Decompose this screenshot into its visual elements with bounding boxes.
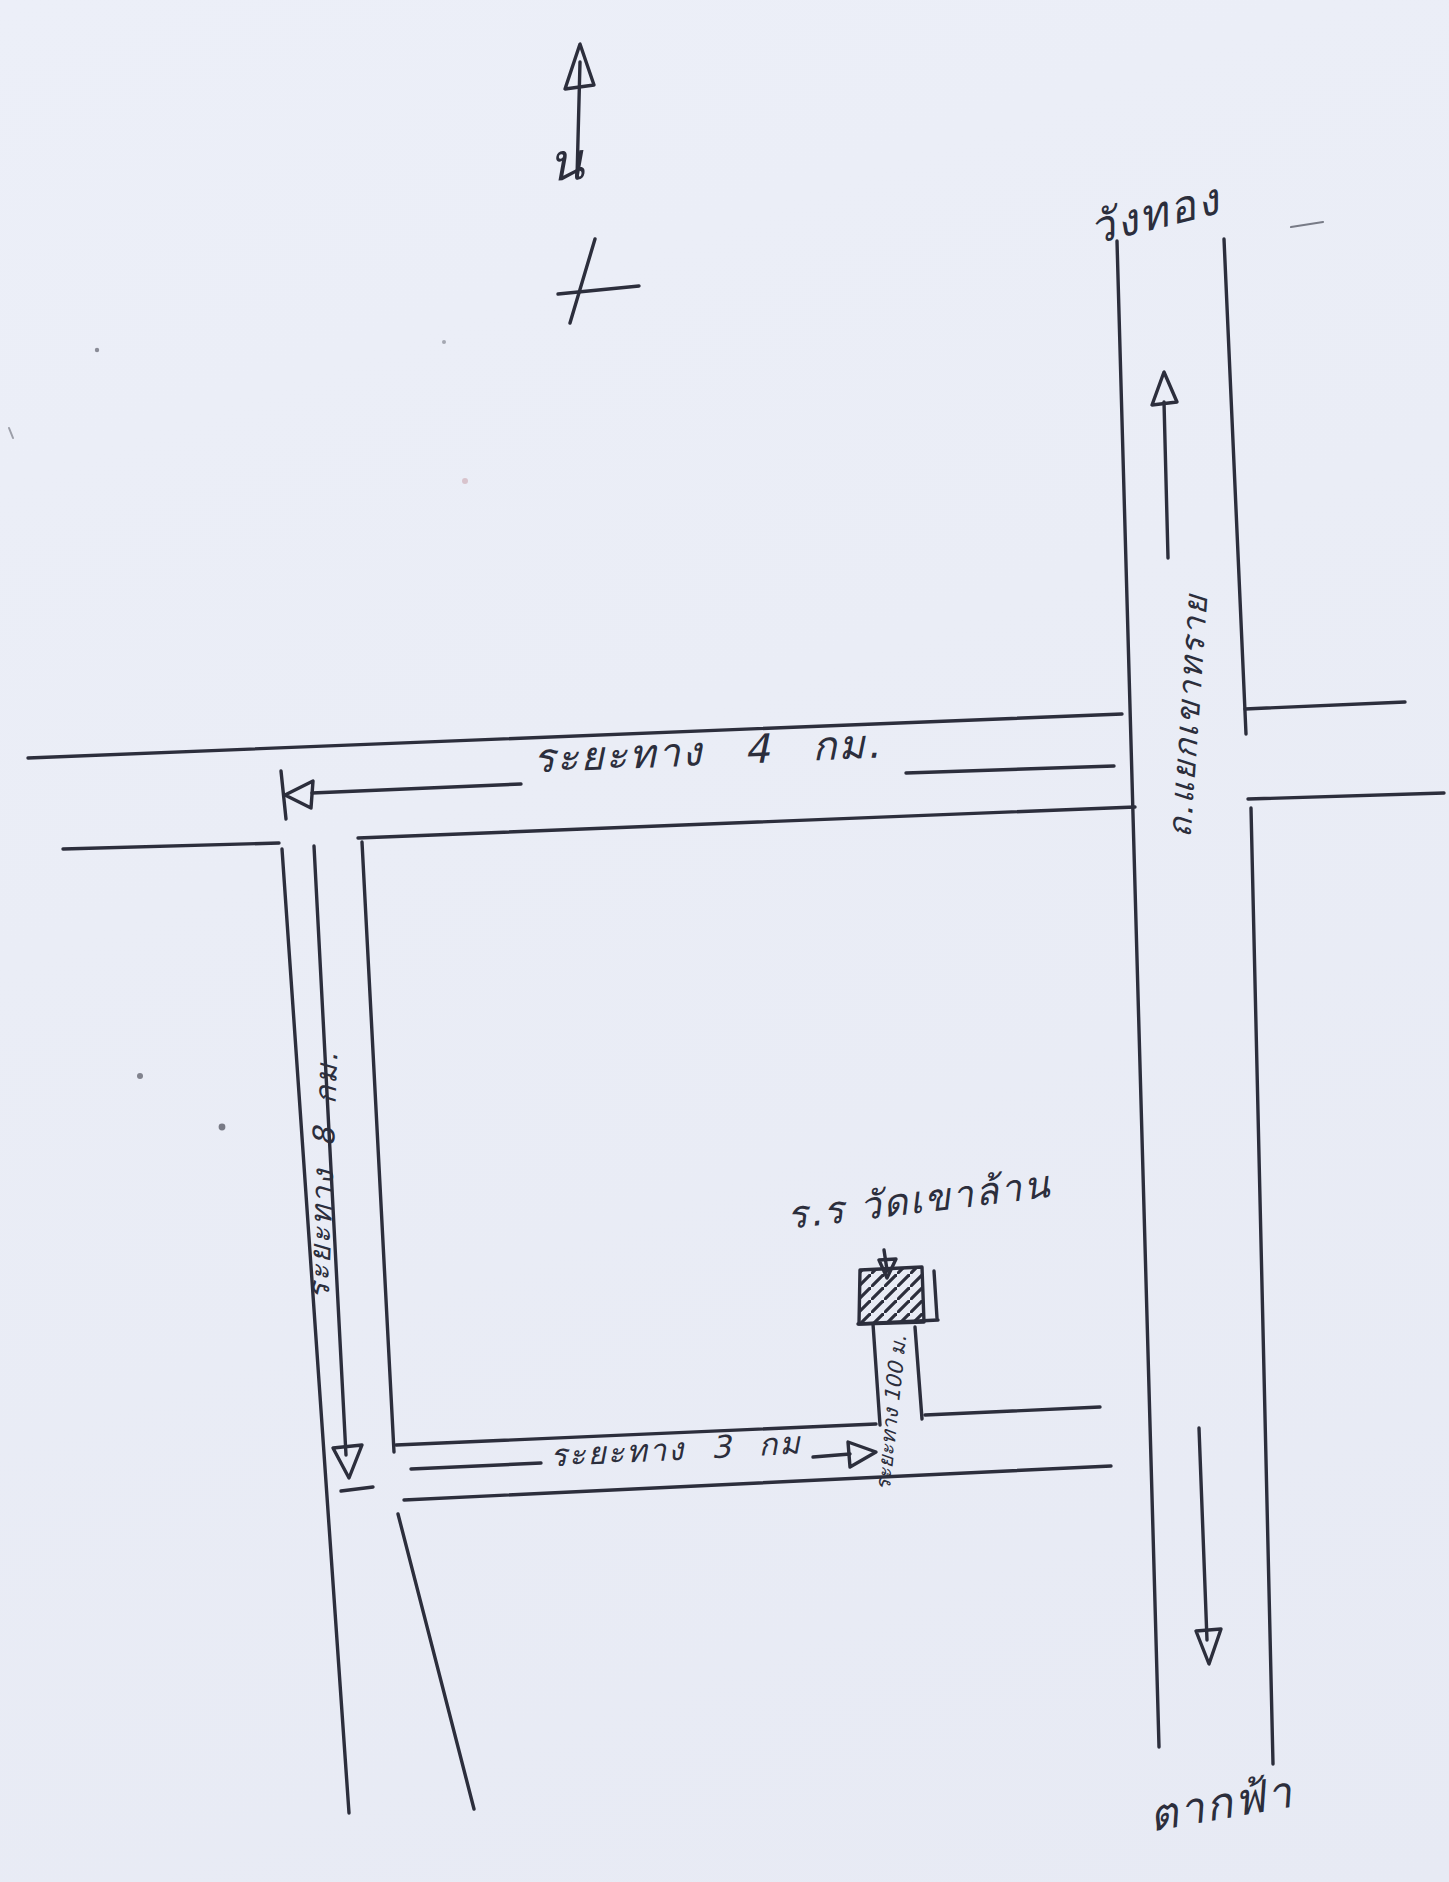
map-drawing: [0, 0, 1449, 1882]
compass-cross-icon: [558, 239, 639, 323]
left-road-distance-label: ระยะทาง 8 กม.: [304, 1049, 359, 1300]
paper-specks: [9, 340, 468, 1130]
highway-up-arrow-icon: [1152, 372, 1177, 558]
main-road: [28, 702, 1444, 849]
compass-north-label: น: [546, 135, 587, 189]
school-building: [858, 1267, 938, 1324]
highway-down-arrow-icon: [1196, 1428, 1221, 1664]
highway-road: [1117, 239, 1273, 1764]
stray-mark: [1291, 222, 1323, 227]
left-road: [282, 842, 474, 1813]
map-page: น วังทอง ถ.แยกเขาทราย ระยะทาง 4 กม. ระยะ…: [0, 0, 1449, 1882]
